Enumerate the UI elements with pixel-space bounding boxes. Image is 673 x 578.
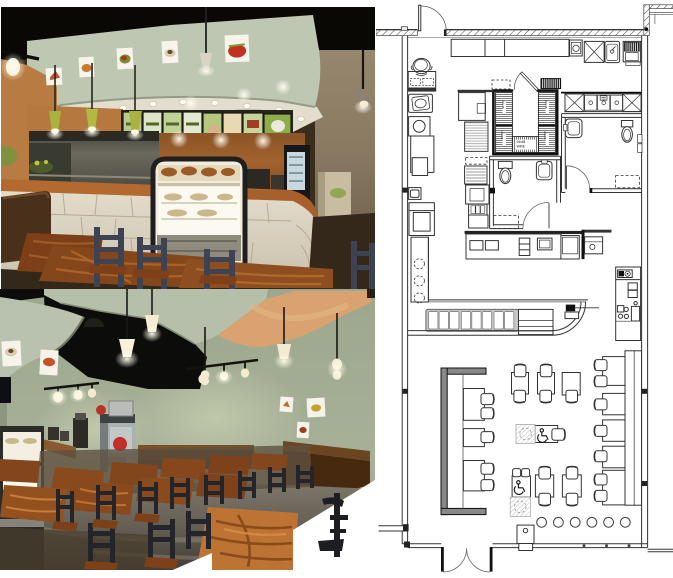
svg-text:24x48: 24x48 bbox=[501, 100, 505, 109]
svg-text:WIRE: WIRE bbox=[517, 144, 525, 148]
svg-text:24x48: 24x48 bbox=[544, 100, 548, 109]
svg-text:24x48: 24x48 bbox=[500, 131, 504, 140]
svg-text:24x48: 24x48 bbox=[543, 131, 547, 140]
